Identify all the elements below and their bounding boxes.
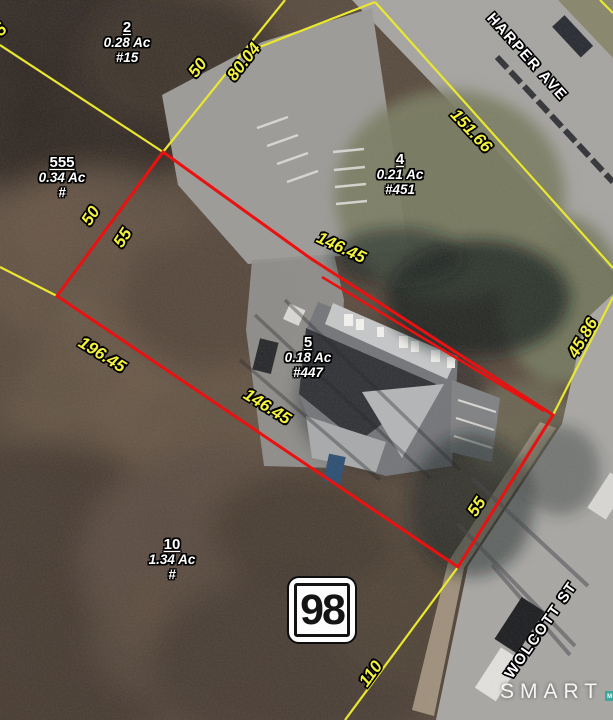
mls-blocks-icon: M L S <box>605 685 613 701</box>
watermark-brand: SMART <box>500 681 603 702</box>
smartmls-watermark: SMART M L S <box>500 681 613 702</box>
parcel-label[interactable]: 10 1.34 Ac # <box>149 537 196 582</box>
parcel-id: 5 <box>285 335 332 350</box>
parcel-id: 4 <box>377 152 424 167</box>
mls-block-m: M <box>605 691 613 701</box>
parcel-address: # <box>39 185 86 200</box>
parcel-area: 0.21 Ac <box>377 167 424 182</box>
parcel-address: #15 <box>104 50 151 65</box>
parcel-area: 0.18 Ac <box>285 350 332 365</box>
parcel-area: 0.34 Ac <box>39 170 86 185</box>
route-shield-border: 98 <box>294 583 350 637</box>
route-98-shield: 98 <box>287 576 357 644</box>
parcel-id: 2 <box>104 20 151 35</box>
parcel-label[interactable]: 4 0.21 Ac #451 <box>377 152 424 197</box>
parcel-address: # <box>149 567 196 582</box>
parcel-id: 10 <box>149 537 196 552</box>
parcel-area: 1.34 Ac <box>149 552 196 567</box>
parcel-label-selected[interactable]: 5 0.18 Ac #447 <box>285 335 332 380</box>
parcel-label[interactable]: 555 0.34 Ac # <box>39 155 86 200</box>
parcel-area: 0.28 Ac <box>104 35 151 50</box>
route-number: 98 <box>300 589 344 632</box>
parcel-label[interactable]: 2 0.28 Ac #15 <box>104 20 151 65</box>
parcel-id: 555 <box>39 155 86 170</box>
map-canvas[interactable]: 5 50 80.04 151.66 50 55 146.45 45.86 196… <box>0 0 613 720</box>
parcel-address: #447 <box>285 365 332 380</box>
parcel-address: #451 <box>377 182 424 197</box>
